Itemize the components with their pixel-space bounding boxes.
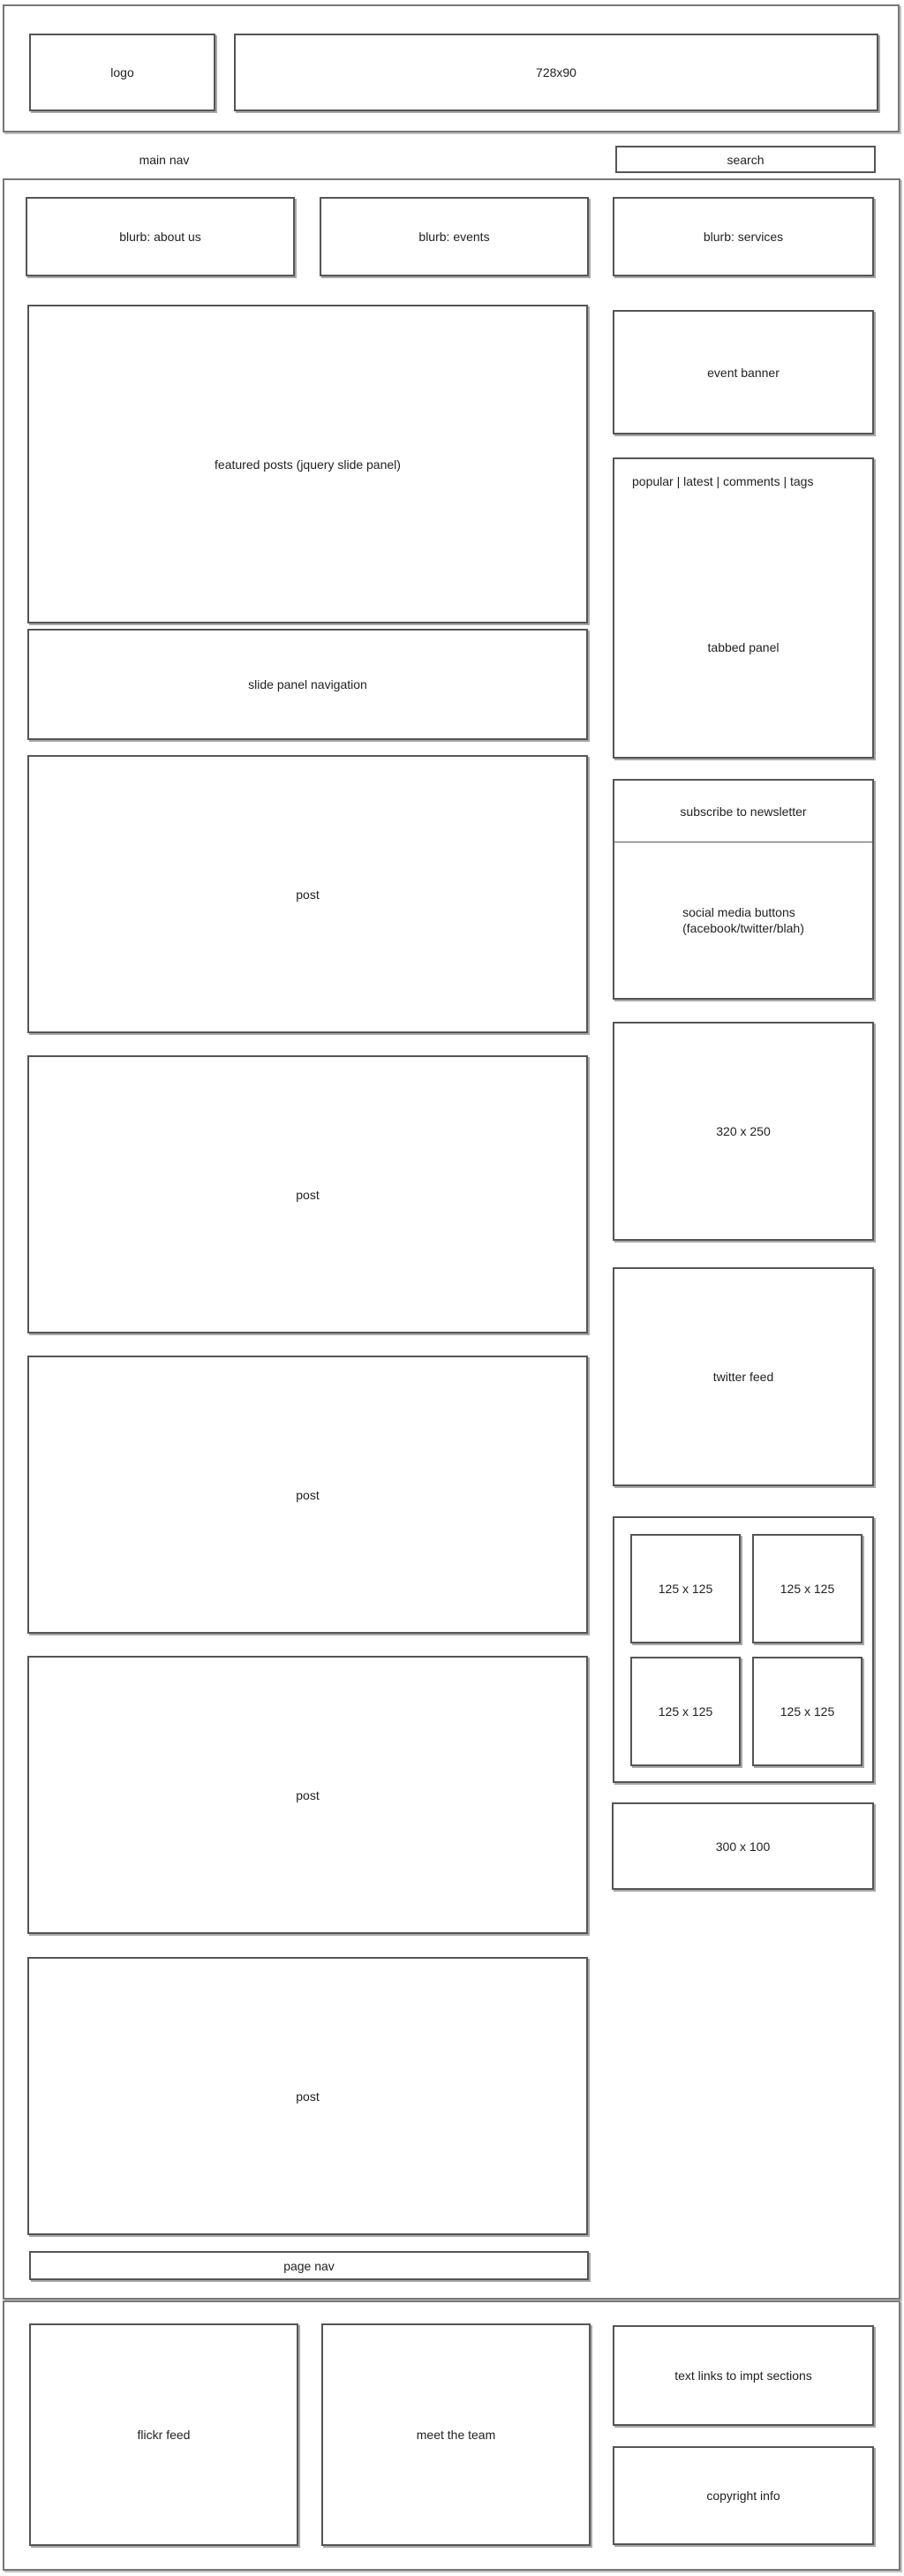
post-label: post	[296, 1488, 319, 1502]
ad-300x100-label: 300 x 100	[716, 1839, 771, 1854]
ad-320x250-box[interactable]: 320 x 250	[613, 1022, 874, 1241]
social-media-buttons-box[interactable]: social media buttons (facebook/twitter/b…	[614, 842, 872, 998]
blurb-services-label: blurb: services	[704, 230, 783, 244]
post-box-5[interactable]: post	[27, 1957, 588, 2235]
ad-125x125-box-1[interactable]: 125 x 125	[630, 1534, 741, 1643]
slide-panel-navigation[interactable]: slide panel navigation	[27, 629, 588, 740]
meet-the-team-label: meet the team	[417, 2428, 496, 2442]
page-nav[interactable]: page nav	[29, 2251, 589, 2280]
main-nav-label: main nav	[139, 153, 190, 167]
event-banner-box[interactable]: event banner	[613, 310, 874, 434]
twitter-feed-label: twitter feed	[713, 1370, 773, 1384]
blurb-events-label: blurb: events	[418, 230, 489, 244]
search-box[interactable]: search	[615, 146, 876, 173]
meet-the-team-box: meet the team	[321, 2323, 591, 2546]
page-nav-label: page nav	[283, 2259, 335, 2273]
event-banner-label: event banner	[707, 366, 780, 380]
tabbed-panel-tabs[interactable]: popular | latest | comments | tags	[632, 474, 813, 488]
social-media-line1: social media buttons	[682, 904, 804, 920]
featured-posts-label: featured posts (jquery slide panel)	[215, 457, 401, 472]
post-label: post	[296, 888, 319, 902]
ad-300x100-box[interactable]: 300 x 100	[612, 1802, 874, 1890]
logo-box[interactable]: logo	[29, 34, 215, 111]
newsletter-social-group: subscribe to newsletter social media but…	[613, 779, 874, 1000]
ad-125x125-label: 125 x 125	[780, 1582, 835, 1596]
ad-125x125-box-4[interactable]: 125 x 125	[752, 1657, 863, 1766]
flickr-feed-label: flickr feed	[138, 2428, 191, 2442]
featured-posts-slider[interactable]: featured posts (jquery slide panel)	[27, 305, 588, 623]
footer-text-links-box[interactable]: text links to impt sections	[613, 2325, 874, 2426]
post-box-2[interactable]: post	[27, 1055, 588, 1333]
post-label: post	[296, 2089, 319, 2104]
leaderboard-ad-label: 728x90	[536, 65, 576, 79]
ad-125x125-label: 125 x 125	[659, 1704, 713, 1719]
ad-125x125-label: 125 x 125	[780, 1704, 835, 1719]
blurb-services-box: blurb: services	[613, 197, 874, 276]
blurb-about-us-label: blurb: about us	[119, 230, 201, 244]
blurb-events-box: blurb: events	[320, 197, 589, 276]
ad-125x125-box-3[interactable]: 125 x 125	[630, 1657, 741, 1766]
flickr-feed-box[interactable]: flickr feed	[29, 2323, 298, 2546]
post-box-4[interactable]: post	[27, 1656, 588, 1934]
social-media-line2: (facebook/twitter/blah)	[682, 920, 804, 936]
copyright-info-label: copyright info	[706, 2489, 780, 2503]
slide-panel-navigation-label: slide panel navigation	[248, 677, 367, 691]
social-media-buttons-label: social media buttons (facebook/twitter/b…	[682, 904, 804, 936]
post-box-1[interactable]: post	[27, 755, 588, 1033]
post-label: post	[296, 1788, 319, 1802]
subscribe-newsletter-box[interactable]: subscribe to newsletter	[614, 781, 872, 842]
search-label: search	[727, 153, 764, 167]
main-nav[interactable]: main nav	[102, 153, 226, 167]
subscribe-newsletter-label: subscribe to newsletter	[680, 805, 806, 819]
tabbed-panel-label: tabbed panel	[614, 640, 872, 654]
wireframe-page: logo 728x90 main nav search blurb: about…	[0, 0, 904, 2576]
leaderboard-ad-728x90[interactable]: 728x90	[234, 34, 878, 111]
ad-125x125-label: 125 x 125	[659, 1582, 713, 1596]
tabbed-panel-box: popular | latest | comments | tags tabbe…	[613, 457, 874, 759]
logo-label: logo	[110, 65, 133, 79]
post-label: post	[296, 1188, 319, 1202]
footer-text-links-label: text links to impt sections	[674, 2368, 812, 2383]
post-box-3[interactable]: post	[27, 1356, 588, 1634]
copyright-info-box: copyright info	[613, 2446, 874, 2545]
ad-125x125-box-2[interactable]: 125 x 125	[752, 1534, 863, 1643]
blurb-about-us-box: blurb: about us	[26, 197, 295, 276]
ad-320x250-label: 320 x 250	[716, 1124, 771, 1138]
twitter-feed-box[interactable]: twitter feed	[613, 1267, 874, 1486]
